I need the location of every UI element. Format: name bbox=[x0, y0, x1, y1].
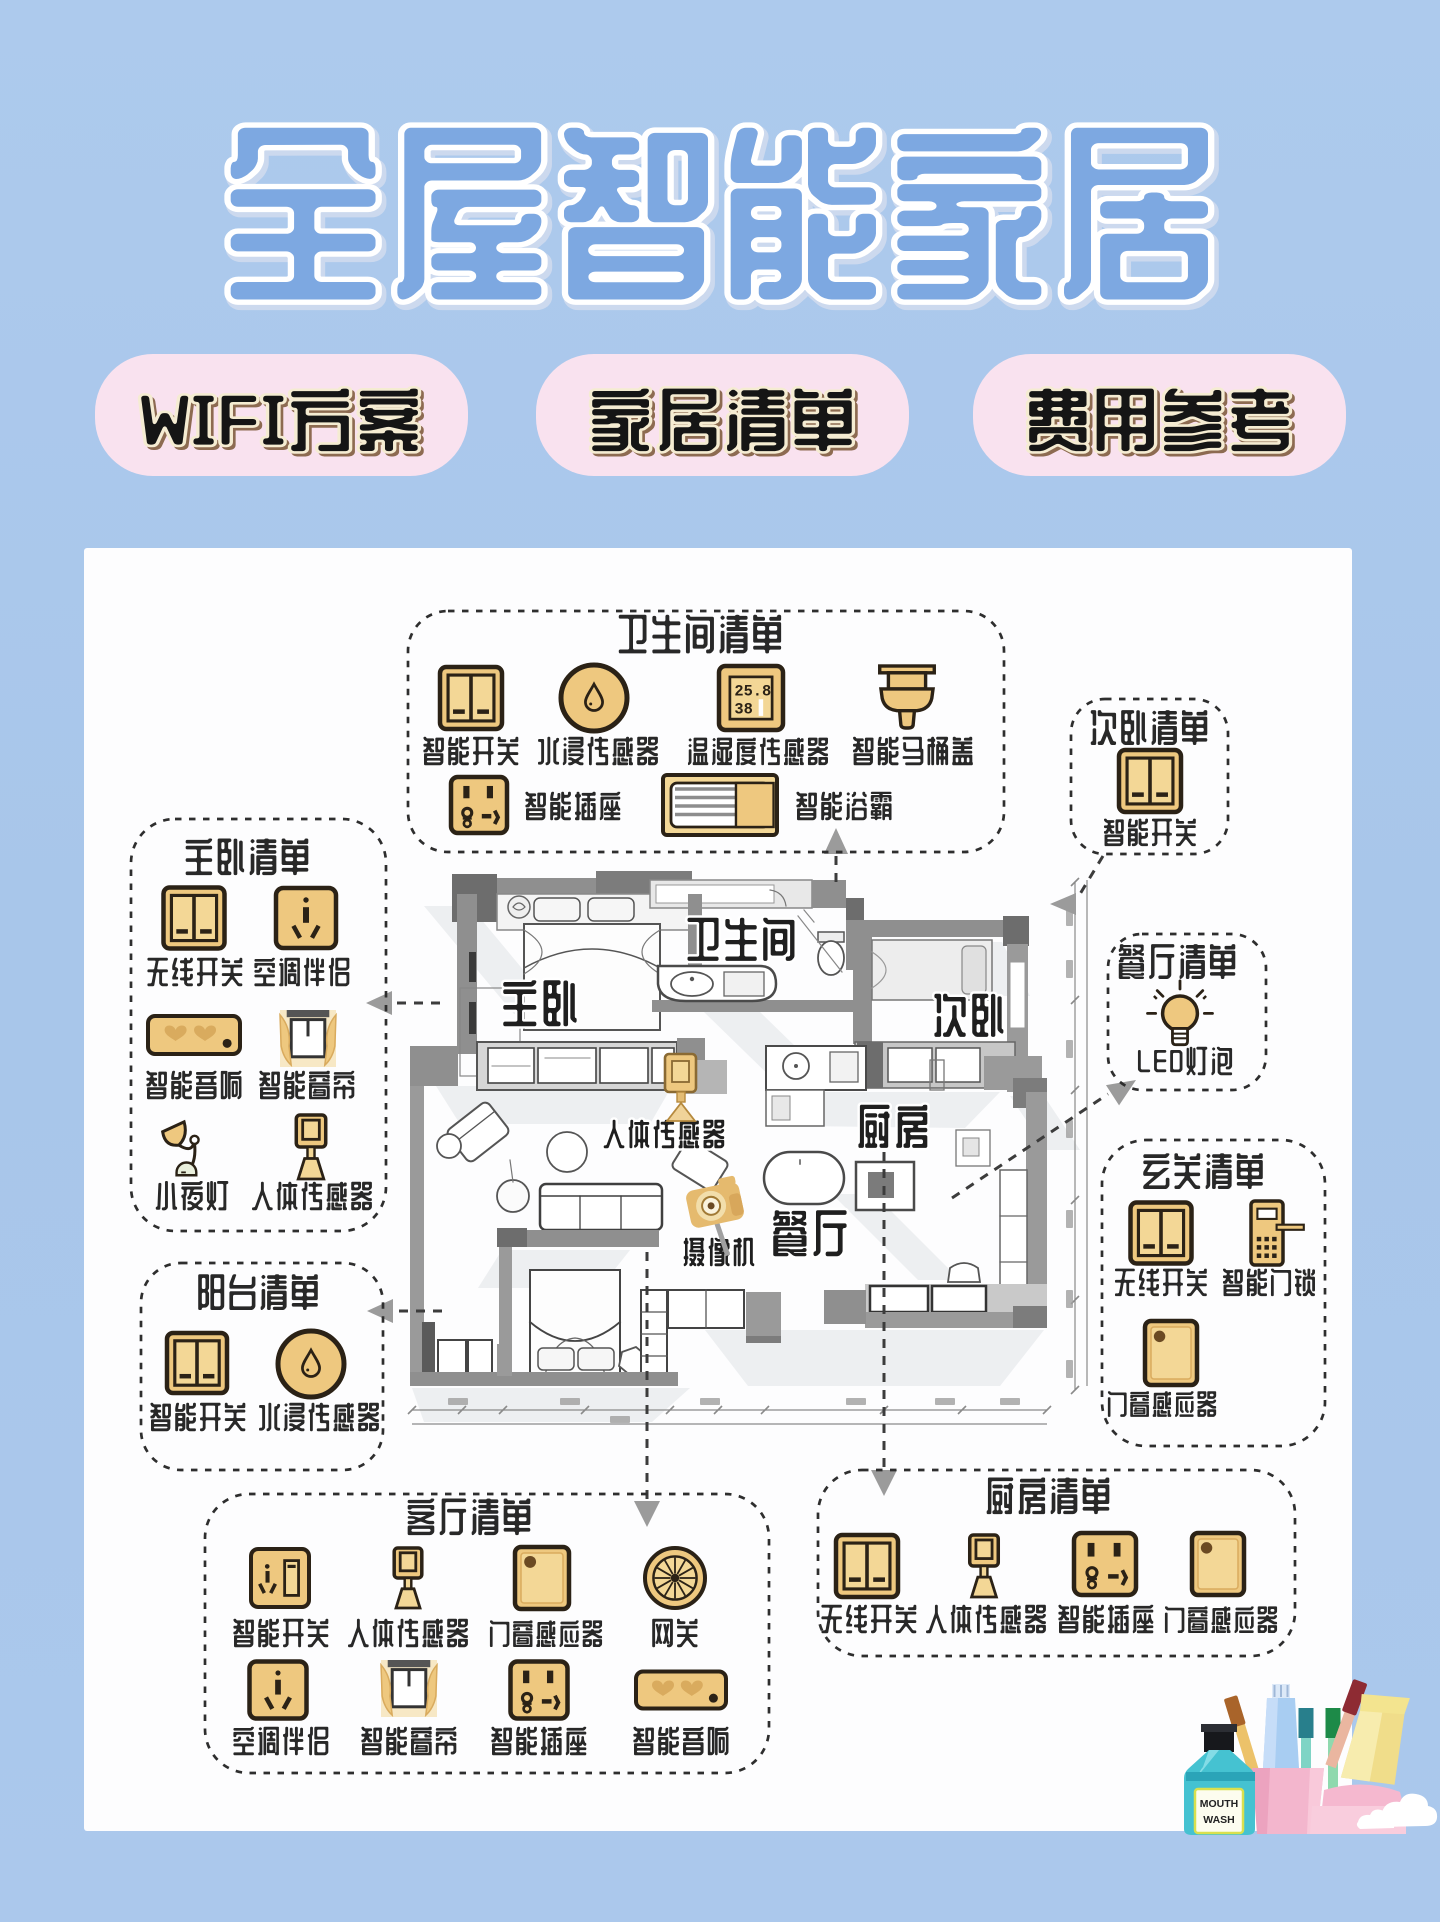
svg-text:MOUTH: MOUTH bbox=[1200, 1798, 1239, 1810]
svg-text:WASH: WASH bbox=[1203, 1814, 1235, 1826]
svg-text:38: 38 bbox=[734, 700, 752, 718]
svg-text:25.8: 25.8 bbox=[734, 682, 771, 700]
